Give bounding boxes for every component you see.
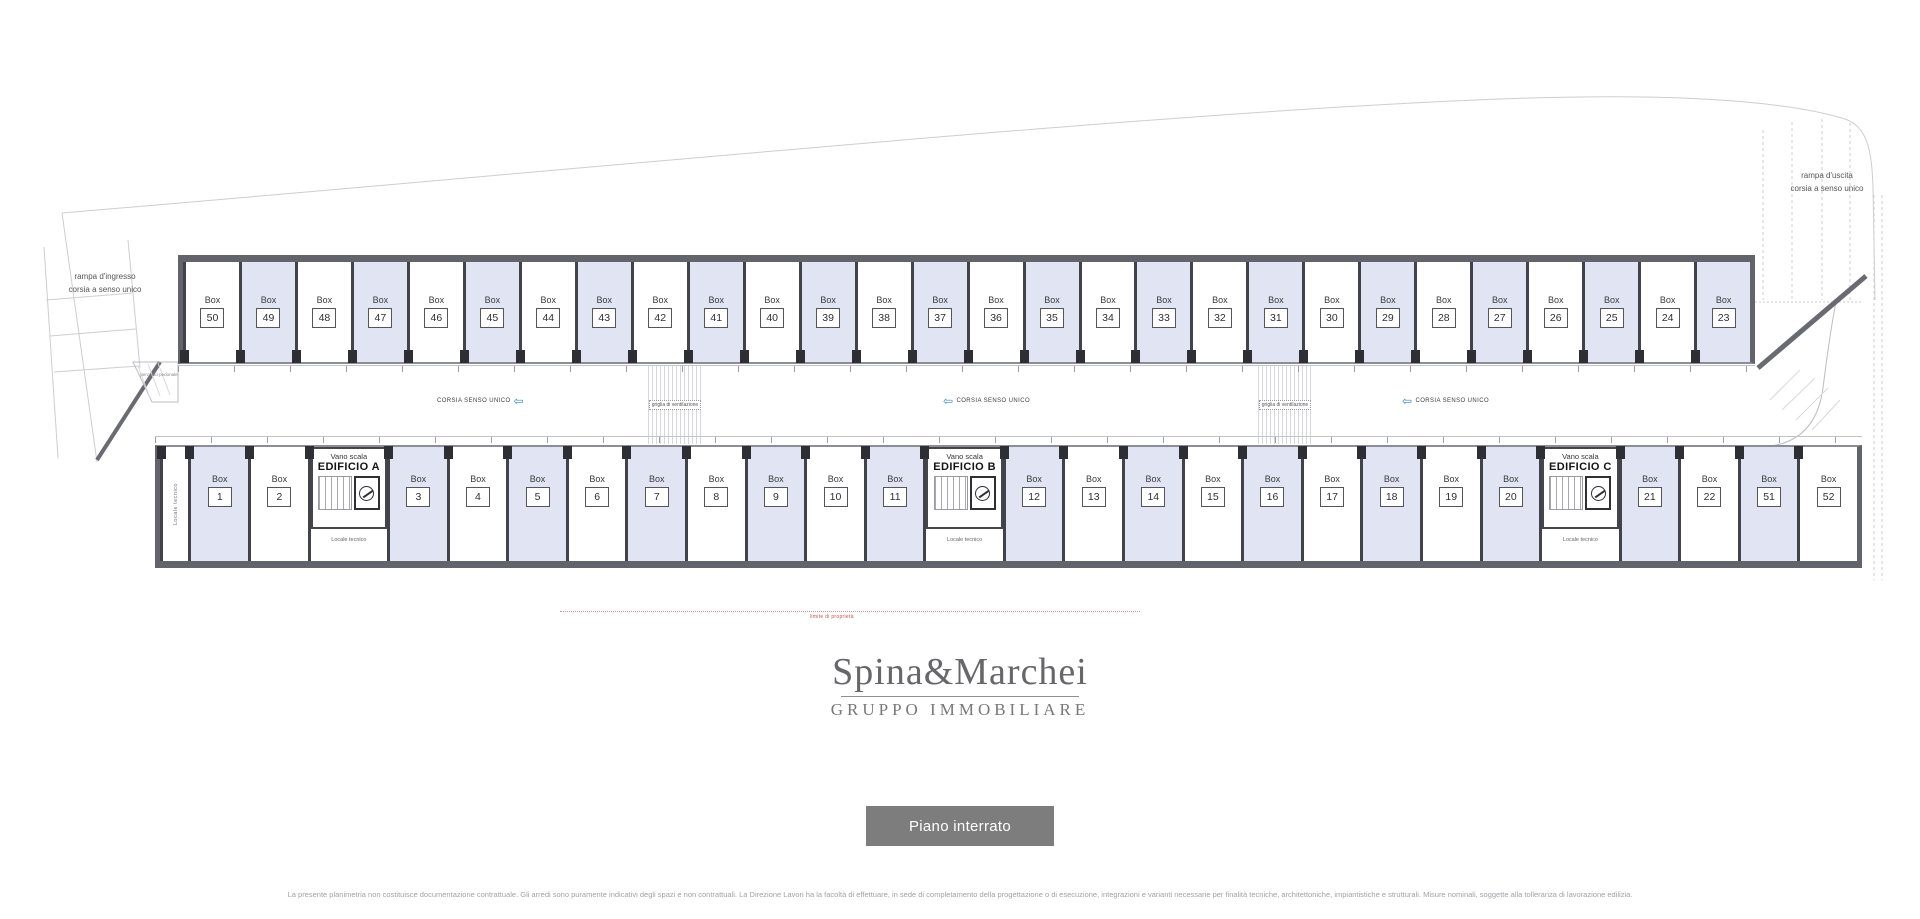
box-number: 20 xyxy=(1499,487,1523,507)
box-number: 35 xyxy=(1040,308,1064,328)
box-word-label: Box xyxy=(1821,474,1837,484)
parking-box[interactable]: Box 3 xyxy=(387,447,447,561)
box-number: 29 xyxy=(1376,308,1400,328)
box-number: 44 xyxy=(536,308,560,328)
parking-box[interactable]: Box 5 xyxy=(506,447,566,561)
box-number: 31 xyxy=(1264,308,1288,328)
parking-box[interactable]: Box 29 xyxy=(1358,262,1414,362)
pedestrian-path-label: percorso pedonale xyxy=(136,372,182,377)
stairwell: Vano scala EDIFICIO A xyxy=(311,447,387,529)
parking-box[interactable]: Box 14 xyxy=(1122,447,1182,561)
lane-arrow-left-icon: ⇦ xyxy=(514,397,524,405)
parking-box[interactable]: Box 28 xyxy=(1414,262,1470,362)
box-word-label: Box xyxy=(820,295,836,305)
parking-box[interactable]: Box 33 xyxy=(1134,262,1190,362)
box-number: 13 xyxy=(1082,487,1106,507)
box-word-label: Box xyxy=(1044,295,1060,305)
stairwell-label: Vano scala xyxy=(331,452,368,461)
box-number: 4 xyxy=(466,487,490,507)
one-way-lane-label-3: ⇦ CORSIA SENSO UNICO xyxy=(1402,397,1489,405)
one-way-lane-label-2: ⇦ CORSIA SENSO UNICO xyxy=(943,397,1030,405)
box-word-label: Box xyxy=(1265,474,1281,484)
brand-tagline: GRUPPO IMMOBILIARE xyxy=(0,700,1920,720)
garage-row-top: Box 50 Box 49 Box 48 Box 47 Box 46 Box 4… xyxy=(178,255,1755,364)
box-word-label: Box xyxy=(1436,295,1452,305)
elevator-icon xyxy=(354,476,380,510)
box-number: 3 xyxy=(406,487,430,507)
box-number: 16 xyxy=(1260,487,1284,507)
box-word-label: Box xyxy=(261,295,277,305)
stairwell-label: Vano scala xyxy=(946,452,983,461)
box-number: 26 xyxy=(1544,308,1568,328)
parking-box[interactable]: Box 18 xyxy=(1360,447,1420,561)
floor-plan: rampa d'ingresso corsia a senso unico ra… xyxy=(0,0,1920,640)
box-number: 42 xyxy=(648,308,672,328)
box-word-label: Box xyxy=(768,474,784,484)
parking-box[interactable]: Box 43 xyxy=(575,262,631,362)
building-name: EDIFICIO B xyxy=(933,461,996,473)
box-word-label: Box xyxy=(212,474,228,484)
box-word-label: Box xyxy=(652,295,668,305)
box-number: 1 xyxy=(208,487,232,507)
entrance-ramp-line2: corsia a senso unico xyxy=(40,284,170,297)
parking-box[interactable]: Box 21 xyxy=(1619,447,1679,561)
exit-ramp-line1: rampa d'uscita xyxy=(1768,170,1886,183)
parking-box[interactable]: Box 19 xyxy=(1420,447,1480,561)
box-word-label: Box xyxy=(205,295,221,305)
box-number: 50 xyxy=(200,308,224,328)
stairwell-block: Vano scala EDIFICIO A Locale tecnico xyxy=(308,447,387,561)
page: rampa d'ingresso corsia a senso unico ra… xyxy=(0,0,1920,919)
box-word-label: Box xyxy=(597,295,613,305)
lane-text: CORSIA SENSO UNICO xyxy=(1415,398,1489,404)
box-number: 25 xyxy=(1600,308,1624,328)
parking-box[interactable]: Box 20 xyxy=(1480,447,1540,561)
parking-box[interactable]: Box 2 xyxy=(248,447,308,561)
box-word-label: Box xyxy=(1324,474,1340,484)
stairwell-block: Vano scala EDIFICIO C Locale tecnico xyxy=(1539,447,1618,561)
box-word-label: Box xyxy=(1212,295,1228,305)
box-word-label: Box xyxy=(1324,295,1340,305)
box-word-label: Box xyxy=(485,295,501,305)
box-word-label: Box xyxy=(1716,295,1732,305)
parking-box[interactable]: Box 11 xyxy=(864,447,924,561)
box-number: 14 xyxy=(1141,487,1165,507)
box-number: 51 xyxy=(1757,487,1781,507)
exit-ramp-label: rampa d'uscita corsia a senso unico xyxy=(1768,170,1886,196)
parking-box[interactable]: Box 31 xyxy=(1246,262,1302,362)
parking-box[interactable]: Box 42 xyxy=(631,262,687,362)
parking-box[interactable]: Box 52 xyxy=(1797,447,1857,561)
box-number: 45 xyxy=(480,308,504,328)
box-word-label: Box xyxy=(876,295,892,305)
parking-box[interactable]: Box 47 xyxy=(351,262,407,362)
box-word-label: Box xyxy=(373,295,389,305)
box-word-label: Box xyxy=(1146,474,1162,484)
box-number: 5 xyxy=(526,487,550,507)
box-word-label: Box xyxy=(411,474,427,484)
box-number: 33 xyxy=(1152,308,1176,328)
parking-box[interactable]: Box 26 xyxy=(1526,262,1582,362)
box-number: 24 xyxy=(1656,308,1680,328)
parking-box[interactable]: Box 35 xyxy=(1023,262,1079,362)
entrance-ramp-label: rampa d'ingresso corsia a senso unico xyxy=(40,271,170,297)
box-number: 52 xyxy=(1817,487,1841,507)
box-word-label: Box xyxy=(272,474,288,484)
parking-box[interactable]: Box 45 xyxy=(463,262,519,362)
box-word-label: Box xyxy=(649,474,665,484)
elevator-icon xyxy=(1585,476,1611,510)
parking-box[interactable]: Box 30 xyxy=(1302,262,1358,362)
technical-room-label: Locale tecnico xyxy=(331,537,366,543)
box-number: 39 xyxy=(816,308,840,328)
technical-room-label: Locale tecnico xyxy=(947,537,982,543)
parking-box[interactable]: Box 22 xyxy=(1678,447,1738,561)
parking-box[interactable]: Box 39 xyxy=(799,262,855,362)
stairs-drawing xyxy=(1549,476,1611,510)
box-word-label: Box xyxy=(1086,474,1102,484)
box-word-label: Box xyxy=(1492,295,1508,305)
technical-room-label: Locale tecnico xyxy=(1563,537,1598,543)
disclaimer-text: La presente planimetria non costituisce … xyxy=(0,890,1920,899)
box-number: 36 xyxy=(984,308,1008,328)
parking-box[interactable]: Box 13 xyxy=(1062,447,1122,561)
ventilation-grid-label: griglia di ventilazione xyxy=(1259,400,1311,410)
parking-box[interactable]: Box 38 xyxy=(855,262,911,362)
brand-name: Spina&Marchei xyxy=(0,650,1920,694)
parking-box[interactable]: Box 37 xyxy=(911,262,967,362)
property-boundary-label: limite di proprietà xyxy=(810,614,854,620)
box-number: 21 xyxy=(1638,487,1662,507)
box-word-label: Box xyxy=(887,474,903,484)
dimension-ticks-bottom xyxy=(155,436,1862,443)
stairs-drawing xyxy=(934,476,996,510)
box-word-label: Box xyxy=(589,474,605,484)
parking-box[interactable]: Box 50 xyxy=(183,262,239,362)
dimension-ticks-top xyxy=(178,365,1755,372)
parking-box[interactable]: Box 36 xyxy=(967,262,1023,362)
parking-box[interactable]: Box 41 xyxy=(687,262,743,362)
parking-box[interactable]: Box 27 xyxy=(1470,262,1526,362)
box-number: 28 xyxy=(1432,308,1456,328)
parking-box[interactable]: Box 34 xyxy=(1079,262,1135,362)
box-word-label: Box xyxy=(541,295,557,305)
parking-box[interactable]: Box 9 xyxy=(745,447,805,561)
box-word-label: Box xyxy=(1026,474,1042,484)
lane-arrow-left-icon: ⇦ xyxy=(1402,397,1412,405)
exit-ramp-line2: corsia a senso unico xyxy=(1768,183,1886,196)
ventilation-grid-1: griglia di ventilazione xyxy=(648,365,702,444)
stairwell: Vano scala EDIFICIO B xyxy=(926,447,1002,529)
parking-box[interactable]: Box 25 xyxy=(1582,262,1638,362)
box-number: 2 xyxy=(267,487,291,507)
box-number: 7 xyxy=(645,487,669,507)
box-word-label: Box xyxy=(764,295,780,305)
box-number: 10 xyxy=(824,487,848,507)
parking-box[interactable]: Box 17 xyxy=(1301,447,1361,561)
box-number: 46 xyxy=(424,308,448,328)
ventilation-grid-label: griglia di ventilazione xyxy=(649,400,701,410)
parking-box[interactable]: Box 1 xyxy=(188,447,248,561)
parking-box[interactable]: Box 51 xyxy=(1738,447,1798,561)
box-number: 40 xyxy=(760,308,784,328)
box-word-label: Box xyxy=(1660,295,1676,305)
lane-arrow-left-icon: ⇦ xyxy=(943,397,953,405)
box-number: 30 xyxy=(1320,308,1344,328)
box-number: 41 xyxy=(704,308,728,328)
parking-box[interactable]: Box 6 xyxy=(566,447,626,561)
box-number: 12 xyxy=(1022,487,1046,507)
box-number: 18 xyxy=(1380,487,1404,507)
parking-box[interactable]: Box 12 xyxy=(1003,447,1063,561)
stairs-icon xyxy=(934,476,968,510)
parking-box[interactable]: Box 7 xyxy=(625,447,685,561)
elevator-icon xyxy=(970,476,996,510)
box-number: 48 xyxy=(312,308,336,328)
box-number: 27 xyxy=(1488,308,1512,328)
box-word-label: Box xyxy=(1268,295,1284,305)
box-word-label: Box xyxy=(988,295,1004,305)
box-word-label: Box xyxy=(470,474,486,484)
parking-box[interactable]: Box 44 xyxy=(519,262,575,362)
stairwell: Vano scala EDIFICIO C xyxy=(1542,447,1618,529)
box-word-label: Box xyxy=(708,295,724,305)
box-number: 22 xyxy=(1697,487,1721,507)
brand-logo: Spina&Marchei GRUPPO IMMOBILIARE xyxy=(0,650,1920,720)
parking-box[interactable]: Box 16 xyxy=(1241,447,1301,561)
parking-box[interactable]: Box 24 xyxy=(1638,262,1694,362)
box-number: 6 xyxy=(585,487,609,507)
box-word-label: Box xyxy=(709,474,725,484)
box-number: 8 xyxy=(704,487,728,507)
garage-row-bottom: Locale tecnico Box 1 Box 2 Vano scala ED… xyxy=(155,445,1862,568)
box-word-label: Box xyxy=(828,474,844,484)
box-number: 47 xyxy=(368,308,392,328)
stairs-drawing xyxy=(318,476,380,510)
lane-text: CORSIA SENSO UNICO xyxy=(437,398,511,404)
box-word-label: Box xyxy=(1761,474,1777,484)
box-number: 9 xyxy=(764,487,788,507)
parking-box[interactable]: Box 48 xyxy=(295,262,351,362)
parking-box[interactable]: Box 10 xyxy=(804,447,864,561)
parking-box[interactable]: Box 8 xyxy=(685,447,745,561)
box-number: 38 xyxy=(872,308,896,328)
box-word-label: Box xyxy=(1100,295,1116,305)
box-word-label: Box xyxy=(1604,295,1620,305)
box-word-label: Box xyxy=(1205,474,1221,484)
box-word-label: Box xyxy=(932,295,948,305)
box-word-label: Box xyxy=(1380,295,1396,305)
parking-box[interactable]: Box 46 xyxy=(407,262,463,362)
floor-selector-button[interactable]: Piano interrato xyxy=(866,806,1054,846)
stairs-icon xyxy=(318,476,352,510)
box-number: 11 xyxy=(883,487,907,507)
box-word-label: Box xyxy=(530,474,546,484)
box-word-label: Box xyxy=(1702,474,1718,484)
technical-room: Locale tecnico xyxy=(160,447,188,561)
box-number: 43 xyxy=(592,308,616,328)
building-name: EDIFICIO A xyxy=(318,461,380,473)
one-way-lane-label-1: CORSIA SENSO UNICO ⇦ xyxy=(437,397,524,405)
box-number: 23 xyxy=(1712,308,1736,328)
box-word-label: Box xyxy=(1503,474,1519,484)
driving-corridor: CORSIA SENSO UNICO ⇦ ⇦ CORSIA SENSO UNIC… xyxy=(160,364,1835,445)
box-number: 37 xyxy=(928,308,952,328)
parking-box[interactable]: Box 4 xyxy=(447,447,507,561)
box-word-label: Box xyxy=(1156,295,1172,305)
lane-text: CORSIA SENSO UNICO xyxy=(956,398,1030,404)
stairwell-block: Vano scala EDIFICIO B Locale tecnico xyxy=(923,447,1002,561)
box-number: 15 xyxy=(1201,487,1225,507)
box-word-label: Box xyxy=(429,295,445,305)
box-number: 17 xyxy=(1320,487,1344,507)
entrance-ramp-line1: rampa d'ingresso xyxy=(40,271,170,284)
box-word-label: Box xyxy=(1444,474,1460,484)
box-word-label: Box xyxy=(1642,474,1658,484)
box-word-label: Box xyxy=(1548,295,1564,305)
stairs-icon xyxy=(1549,476,1583,510)
ventilation-grid-2: griglia di ventilazione xyxy=(1258,365,1312,444)
parking-box[interactable]: Box 23 xyxy=(1694,262,1750,362)
box-number: 49 xyxy=(256,308,280,328)
box-word-label: Box xyxy=(1384,474,1400,484)
parking-box[interactable]: Box 49 xyxy=(239,262,295,362)
box-number: 34 xyxy=(1096,308,1120,328)
parking-box[interactable]: Box 40 xyxy=(743,262,799,362)
brand-rule xyxy=(841,696,1079,697)
box-word-label: Box xyxy=(317,295,333,305)
box-number: 19 xyxy=(1439,487,1463,507)
property-boundary-line xyxy=(560,611,1140,612)
stairwell-label: Vano scala xyxy=(1562,452,1599,461)
technical-room-label: Locale tecnico xyxy=(173,483,179,525)
building-name: EDIFICIO C xyxy=(1549,461,1612,473)
parking-box[interactable]: Box 15 xyxy=(1182,447,1242,561)
box-number: 32 xyxy=(1208,308,1232,328)
parking-box[interactable]: Box 32 xyxy=(1190,262,1246,362)
